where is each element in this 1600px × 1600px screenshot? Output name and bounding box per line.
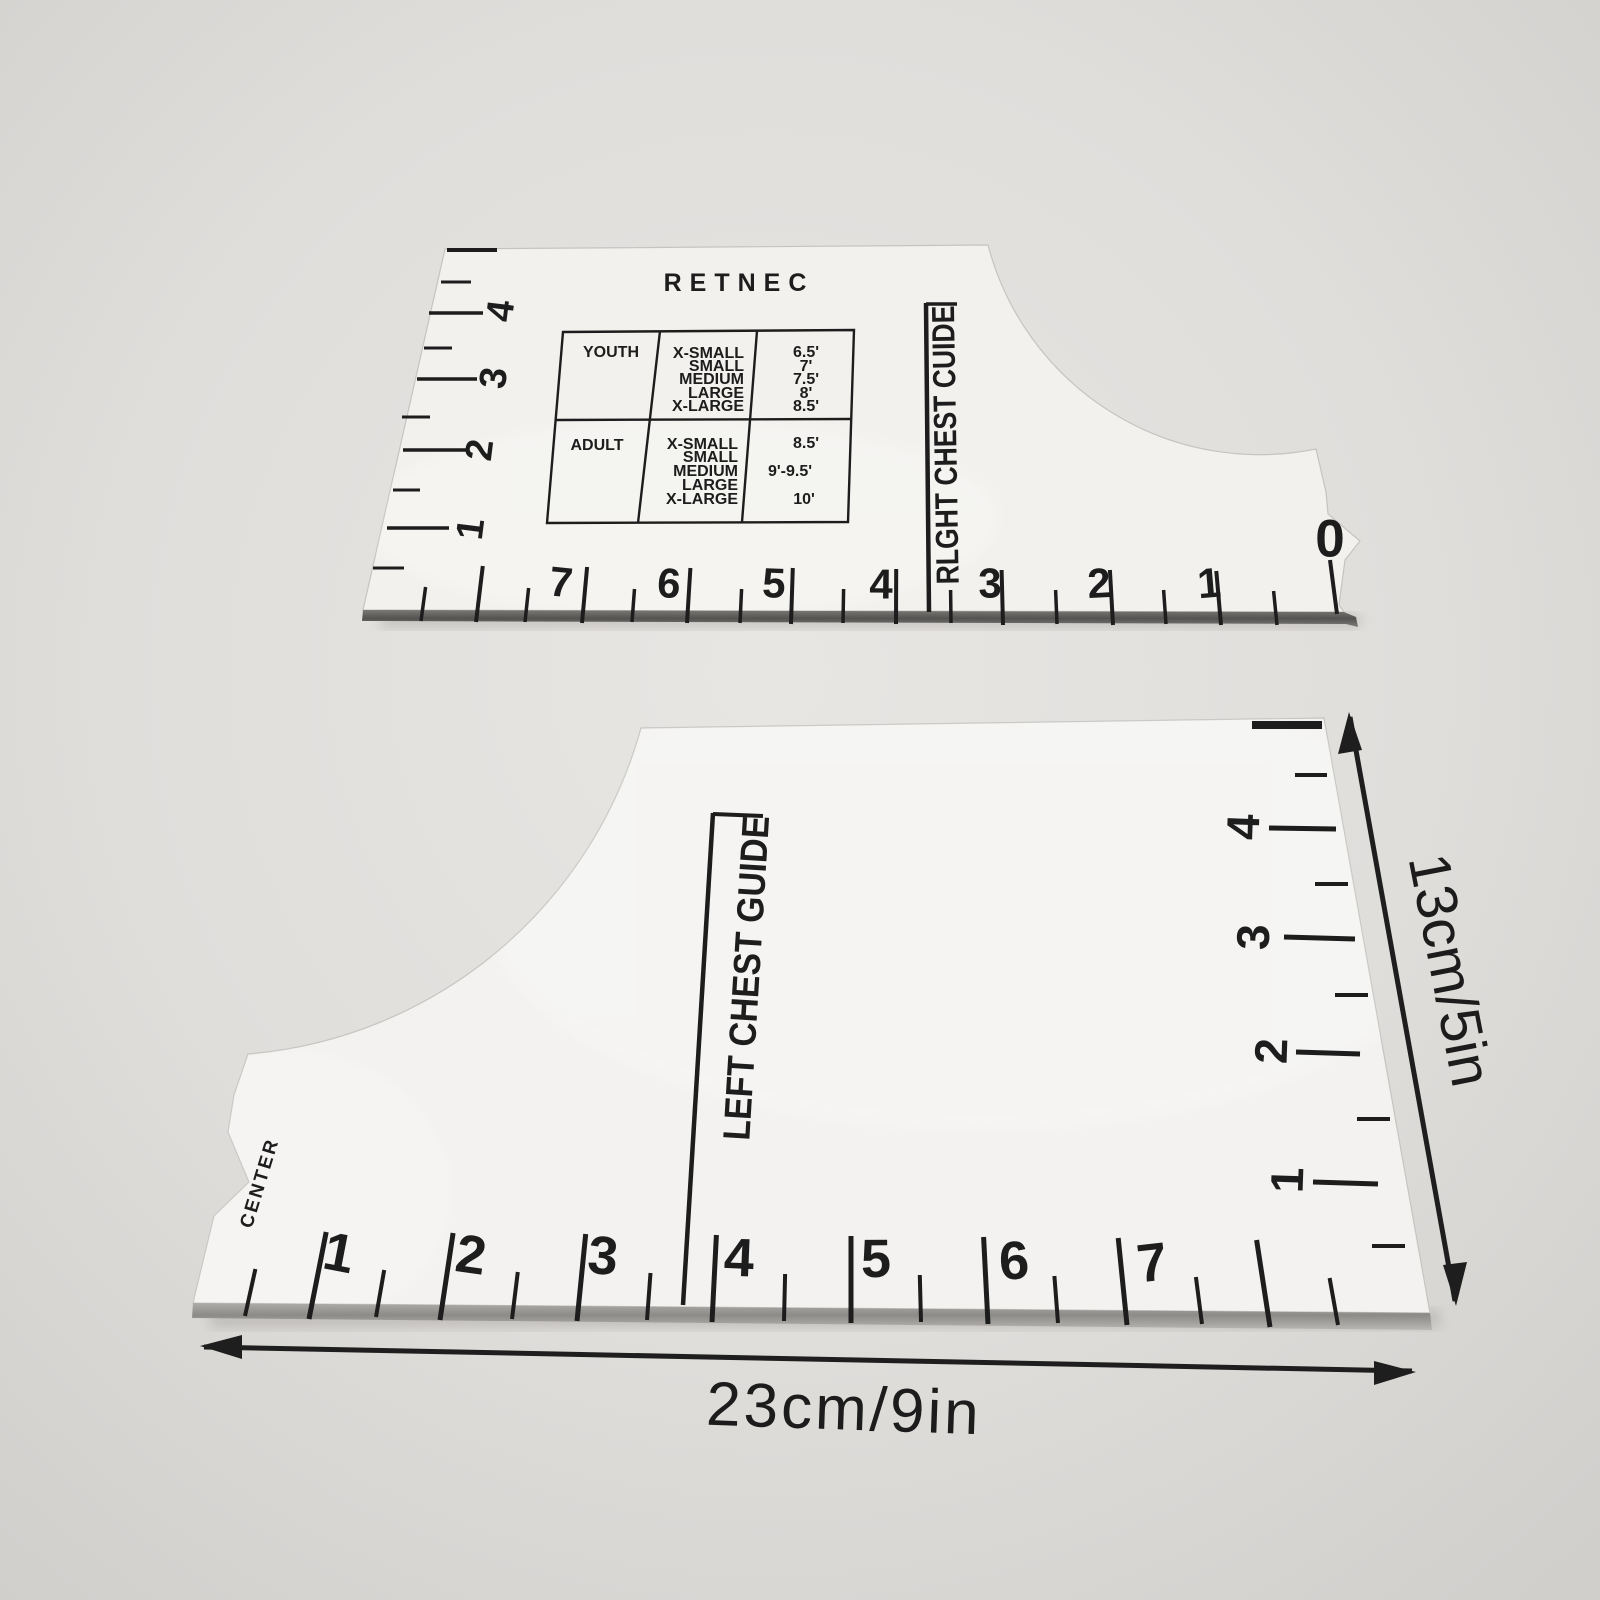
svg-text:2: 2 xyxy=(1086,559,1112,607)
svg-text:RETNEC: RETNEC xyxy=(664,269,815,297)
svg-text:2: 2 xyxy=(1245,1037,1298,1064)
svg-text:10': 10' xyxy=(793,491,815,508)
svg-text:4: 4 xyxy=(869,560,893,607)
svg-text:X-LARGE: X-LARGE xyxy=(672,398,744,415)
svg-text:9'-9.5': 9'-9.5' xyxy=(768,463,812,480)
svg-text:1: 1 xyxy=(1261,1166,1314,1193)
svg-text:5: 5 xyxy=(861,1229,892,1289)
svg-text:1: 1 xyxy=(1195,559,1222,608)
svg-text:5: 5 xyxy=(761,559,786,607)
svg-text:X-LARGE: X-LARGE xyxy=(666,491,738,508)
svg-text:4: 4 xyxy=(1217,813,1270,841)
svg-text:0: 0 xyxy=(1315,510,1344,569)
svg-text:8.5': 8.5' xyxy=(793,398,819,415)
svg-text:ADULT: ADULT xyxy=(570,437,623,454)
svg-text:3: 3 xyxy=(978,559,1002,607)
svg-text:6: 6 xyxy=(656,559,682,607)
svg-text:3: 3 xyxy=(585,1225,620,1288)
svg-text:23cm/9in: 23cm/9in xyxy=(705,1370,983,1449)
svg-text:YOUTH: YOUTH xyxy=(583,344,639,361)
svg-text:3: 3 xyxy=(1227,923,1280,950)
svg-text:6: 6 xyxy=(997,1230,1031,1292)
svg-text:RLGHT CHEST CUIDE: RLGHT CHEST CUIDE xyxy=(926,305,967,584)
svg-text:4: 4 xyxy=(723,1227,756,1288)
svg-text:7: 7 xyxy=(547,557,575,606)
svg-text:8.5': 8.5' xyxy=(793,435,819,452)
